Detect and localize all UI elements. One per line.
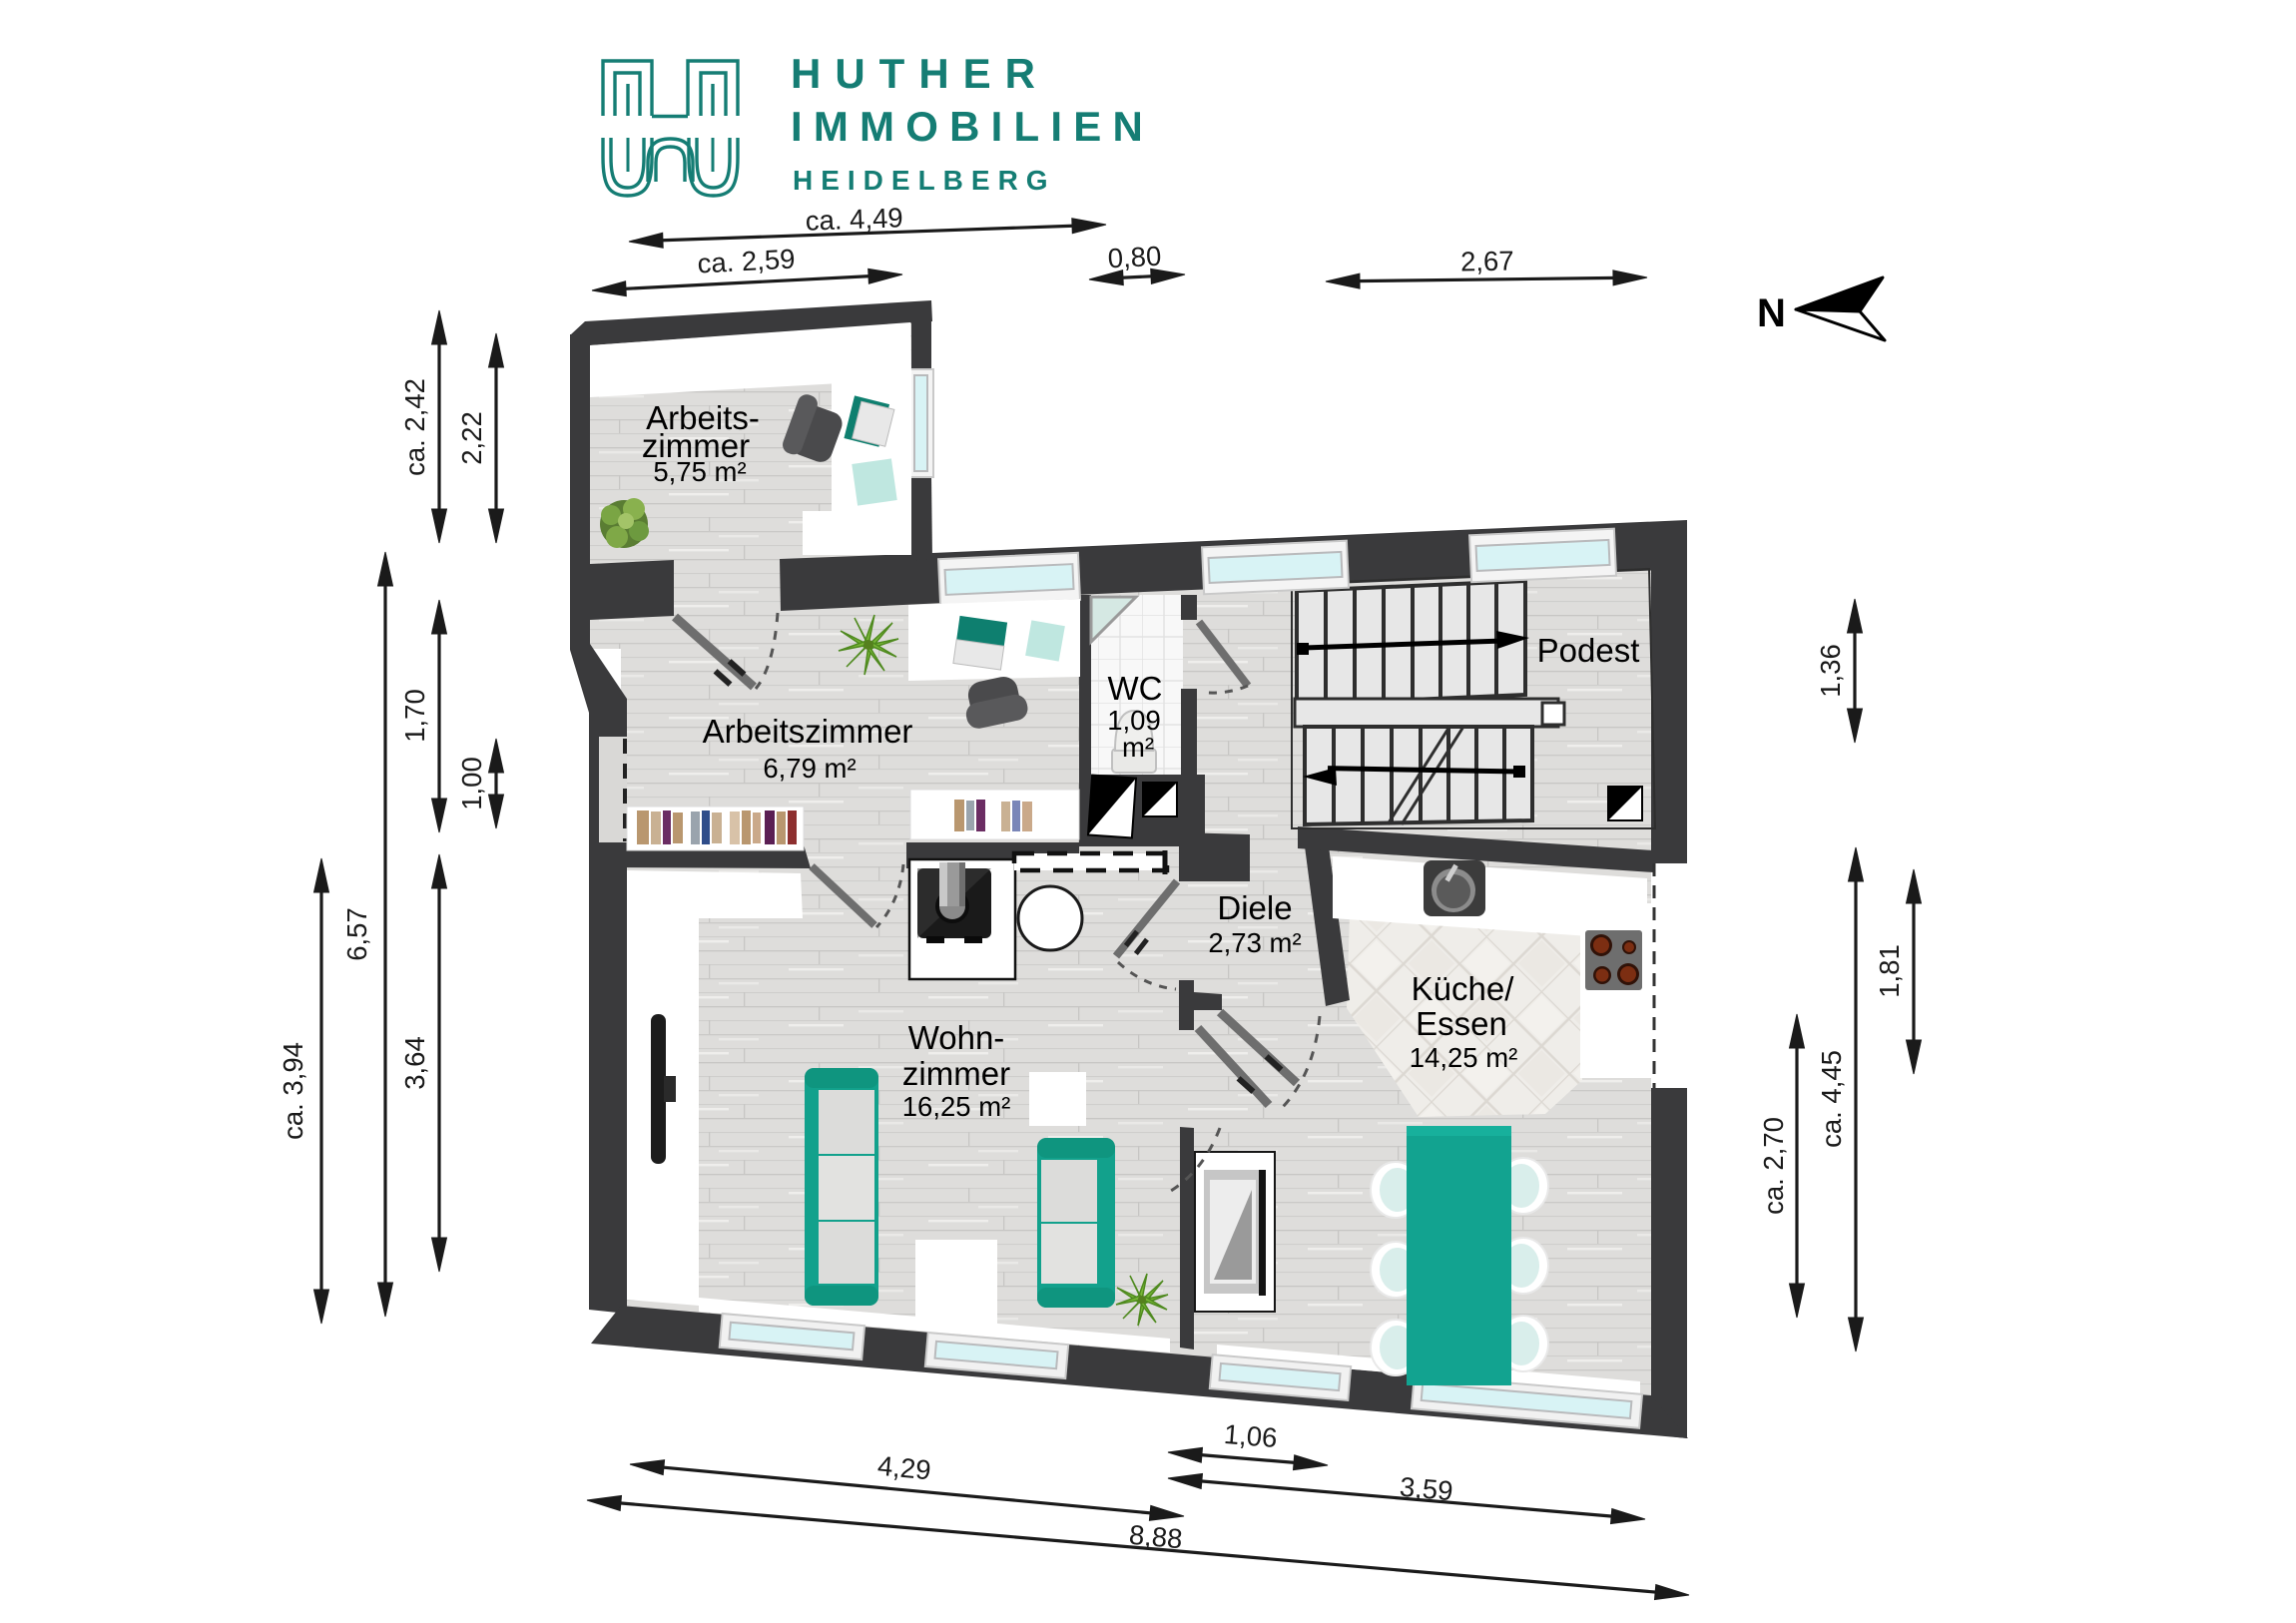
svg-text:ca. 4,49: ca. 4,49	[805, 202, 903, 237]
svg-text:ca. 2,70: ca. 2,70	[1758, 1117, 1789, 1215]
svg-text:Podest: Podest	[1537, 632, 1640, 669]
svg-text:14,25 m²: 14,25 m²	[1410, 1042, 1518, 1073]
svg-text:Essen: Essen	[1416, 1005, 1507, 1042]
svg-text:1,00: 1,00	[456, 757, 487, 811]
svg-text:HEIDELBERG: HEIDELBERG	[793, 165, 1056, 196]
svg-text:6,57: 6,57	[341, 907, 372, 961]
svg-text:WC: WC	[1108, 670, 1163, 707]
svg-text:N: N	[1757, 291, 1786, 335]
svg-text:5,75 m²: 5,75 m²	[653, 456, 746, 487]
svg-text:1,70: 1,70	[399, 689, 430, 743]
svg-text:Diele: Diele	[1217, 889, 1292, 926]
svg-text:4,29: 4,29	[876, 1450, 932, 1486]
svg-text:0,80: 0,80	[1107, 241, 1162, 274]
svg-text:3,59: 3,59	[1399, 1471, 1454, 1507]
svg-text:1,36: 1,36	[1815, 644, 1846, 698]
svg-text:16,25 m²: 16,25 m²	[902, 1091, 1011, 1122]
svg-text:ca. 2,42: ca. 2,42	[399, 378, 430, 476]
svg-text:1,81: 1,81	[1874, 944, 1905, 998]
svg-text:Küche/: Küche/	[1412, 970, 1515, 1007]
svg-text:6,79 m²: 6,79 m²	[763, 753, 856, 784]
svg-text:1,06: 1,06	[1223, 1418, 1279, 1453]
svg-text:IMMOBILIEN: IMMOBILIEN	[791, 103, 1154, 150]
svg-text:Arbeitszimmer: Arbeitszimmer	[703, 713, 913, 750]
svg-text:2,67: 2,67	[1460, 246, 1514, 277]
svg-text:8,88: 8,88	[1128, 1519, 1184, 1555]
svg-text:ca. 2,59: ca. 2,59	[697, 243, 796, 278]
svg-text:zimmer: zimmer	[902, 1055, 1010, 1092]
svg-text:3,64: 3,64	[399, 1036, 430, 1090]
svg-text:ca. 3,94: ca. 3,94	[278, 1042, 308, 1140]
svg-text:ca. 4,45: ca. 4,45	[1816, 1050, 1847, 1148]
svg-text:HUTHER: HUTHER	[791, 50, 1049, 97]
svg-text:2,22: 2,22	[456, 411, 487, 465]
svg-text:Wohn-: Wohn-	[908, 1019, 1005, 1056]
svg-text:m²: m²	[1122, 732, 1154, 763]
svg-text:2,73 m²: 2,73 m²	[1208, 927, 1301, 958]
